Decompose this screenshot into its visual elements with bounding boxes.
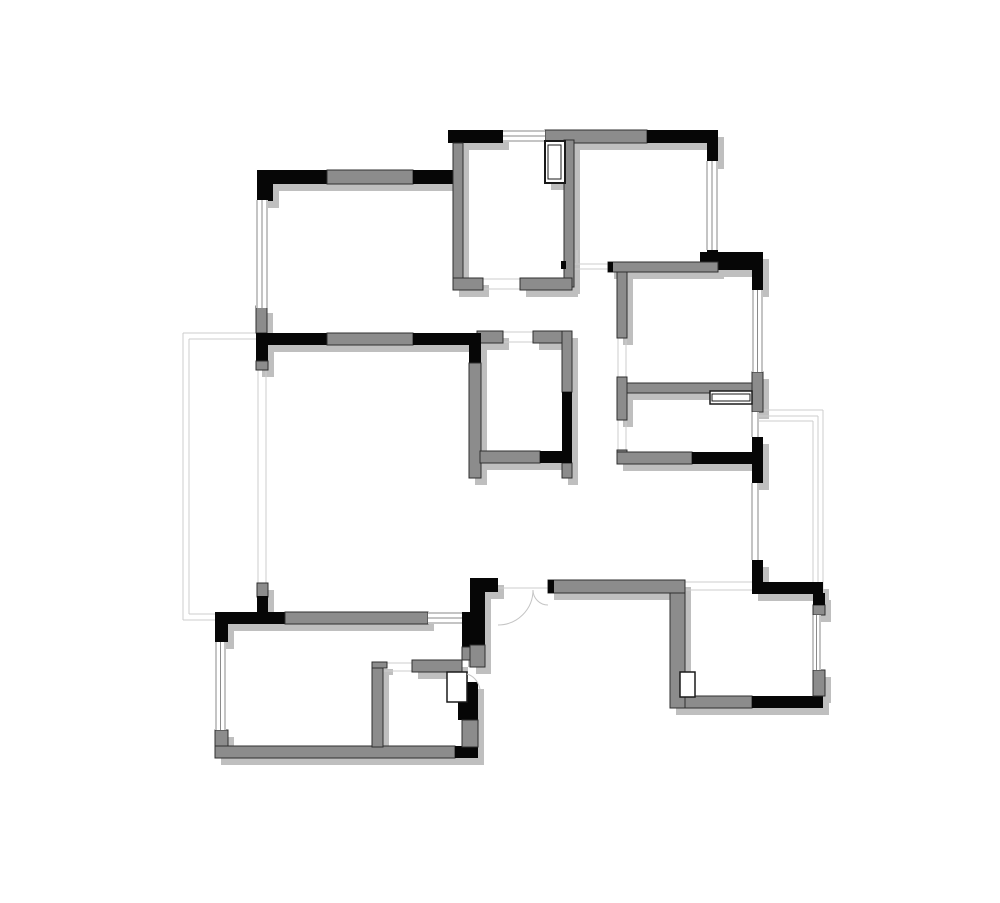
wall-partition: [562, 331, 572, 392]
wall-bearing: [561, 261, 566, 269]
wall-partition: [256, 306, 267, 333]
wall-partition: [372, 662, 387, 668]
wall-partition: [617, 452, 692, 464]
wall-bearing: [752, 252, 763, 290]
wall-partition: [752, 372, 763, 412]
fixture-symbol: [447, 672, 467, 702]
wall-bearing: [469, 333, 481, 363]
wall-partition: [412, 660, 462, 672]
wall-partition: [617, 272, 627, 338]
wall-partition: [480, 451, 540, 463]
wall-bearing: [813, 593, 825, 605]
wall-partition: [327, 170, 413, 184]
wall-partition: [520, 278, 572, 290]
wall-partition: [470, 645, 485, 667]
door-swing-arc: [533, 590, 548, 605]
wall-partition: [462, 720, 478, 747]
fixture-symbol: [680, 672, 695, 697]
wall-bearing: [752, 560, 763, 594]
wall-partition: [453, 143, 463, 283]
wall-bearing: [257, 170, 273, 201]
wall-partition: [453, 278, 483, 290]
floor-plan: [0, 0, 1000, 903]
wall-bearing: [540, 451, 572, 463]
wall-partition: [617, 377, 627, 420]
wall-bearing: [752, 696, 823, 708]
fixture-symbol: [712, 394, 750, 401]
wall-bearing: [455, 746, 478, 758]
wall-partition: [608, 262, 718, 272]
wall-partition: [685, 696, 752, 708]
wall-partition: [215, 746, 455, 758]
wall-partition: [469, 363, 481, 478]
wall-partition: [548, 580, 685, 593]
wall-bearing: [462, 612, 478, 647]
wall-partition: [327, 333, 413, 345]
wall-bearing: [413, 333, 477, 345]
wall-bearing: [256, 333, 327, 345]
floor-plan-svg: [0, 0, 1000, 903]
wall-partition: [257, 583, 268, 597]
wall-partition: [285, 612, 428, 624]
wall-partition: [533, 331, 563, 343]
wall-bearing: [215, 612, 285, 624]
wall-partition: [256, 361, 268, 370]
wall-bearing: [692, 452, 763, 464]
wall-partition: [372, 662, 383, 747]
wall-partition: [813, 605, 825, 615]
fixture-symbol: [548, 145, 561, 179]
wall-bearing: [608, 262, 613, 272]
wall-partition: [813, 670, 825, 696]
wall-bearing: [548, 580, 554, 593]
wall-bearing: [448, 130, 503, 143]
wall-bearing: [707, 130, 718, 162]
wall-partition: [562, 463, 572, 478]
